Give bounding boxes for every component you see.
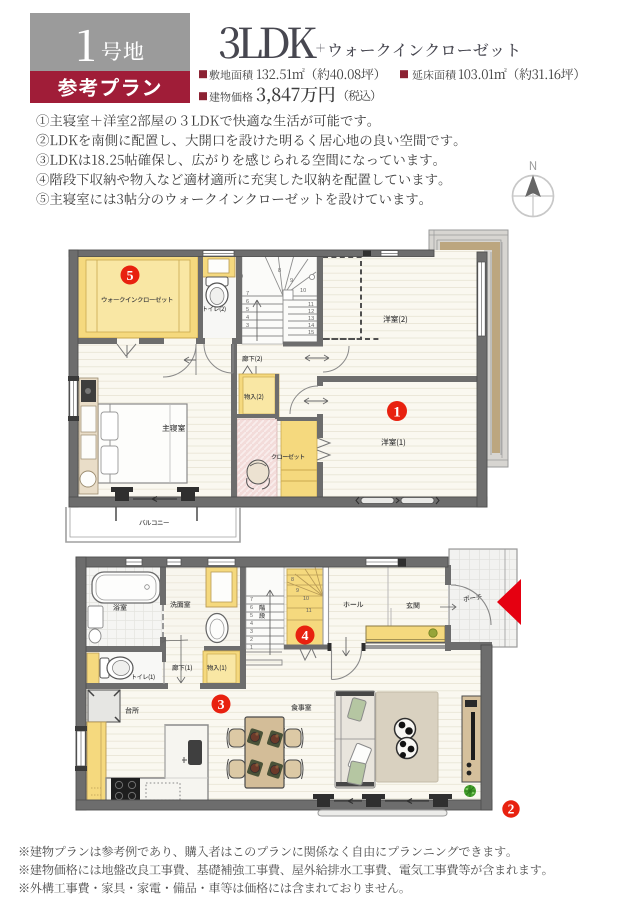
- svg-text:7: 7: [246, 291, 249, 297]
- svg-text:4: 4: [302, 629, 309, 644]
- svg-text:15: 15: [308, 330, 314, 336]
- svg-text:10: 10: [303, 596, 309, 602]
- svg-text:8: 8: [291, 577, 294, 583]
- svg-text:3: 3: [218, 698, 225, 713]
- svg-text:6: 6: [246, 299, 249, 305]
- svg-text:10: 10: [300, 288, 306, 294]
- svg-text:4: 4: [250, 621, 253, 627]
- svg-text:6: 6: [250, 605, 253, 611]
- svg-text:2: 2: [250, 637, 253, 643]
- svg-text:5: 5: [250, 613, 253, 619]
- svg-text:1: 1: [393, 405, 401, 421]
- svg-text:9: 9: [290, 278, 293, 284]
- svg-text:11: 11: [306, 608, 312, 614]
- svg-text:3: 3: [250, 629, 253, 635]
- svg-text:8: 8: [278, 268, 281, 274]
- svg-text:4: 4: [246, 315, 249, 321]
- svg-text:9: 9: [296, 588, 299, 594]
- svg-text:11: 11: [308, 302, 314, 308]
- svg-text:2: 2: [508, 802, 515, 817]
- svg-text:12: 12: [308, 309, 314, 315]
- svg-text:14: 14: [308, 323, 314, 329]
- svg-text:5: 5: [246, 307, 249, 313]
- svg-text:1: 1: [250, 645, 253, 651]
- svg-text:7: 7: [250, 597, 253, 603]
- svg-text:5: 5: [127, 269, 134, 284]
- svg-text:3: 3: [246, 323, 249, 329]
- svg-text:13: 13: [308, 316, 314, 322]
